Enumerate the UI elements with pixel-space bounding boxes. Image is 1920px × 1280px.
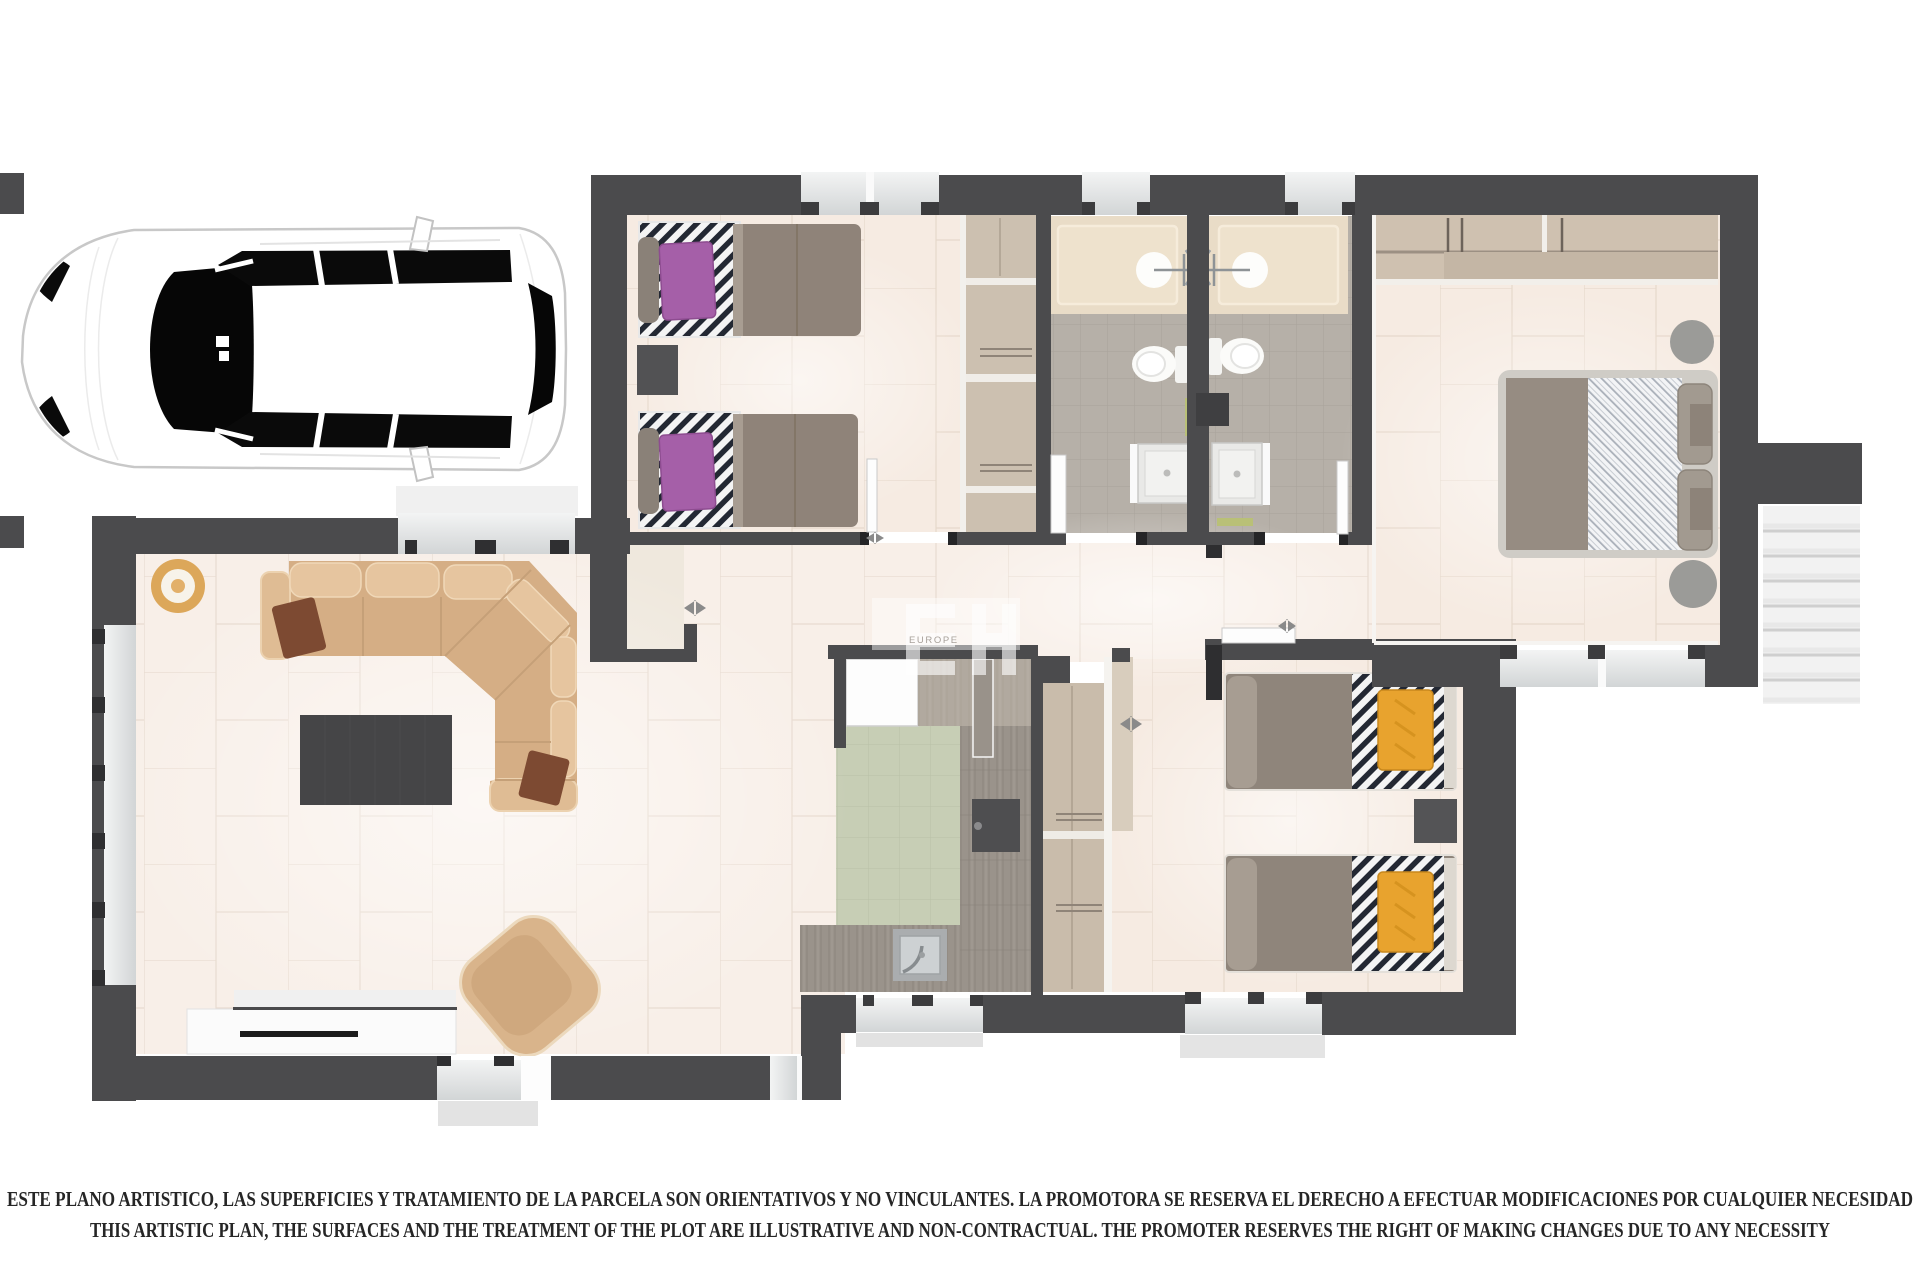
svg-text:ESTE PLANO ARTISTICO, LAS SUPE: ESTE PLANO ARTISTICO, LAS SUPERFICIES Y … [7,1187,1913,1211]
svg-text:THIS ARTISTIC PLAN, THE SURFAC: THIS ARTISTIC PLAN, THE SURFACES AND THE… [90,1218,1830,1242]
svg-text:EUROPE: EUROPE [909,635,959,646]
